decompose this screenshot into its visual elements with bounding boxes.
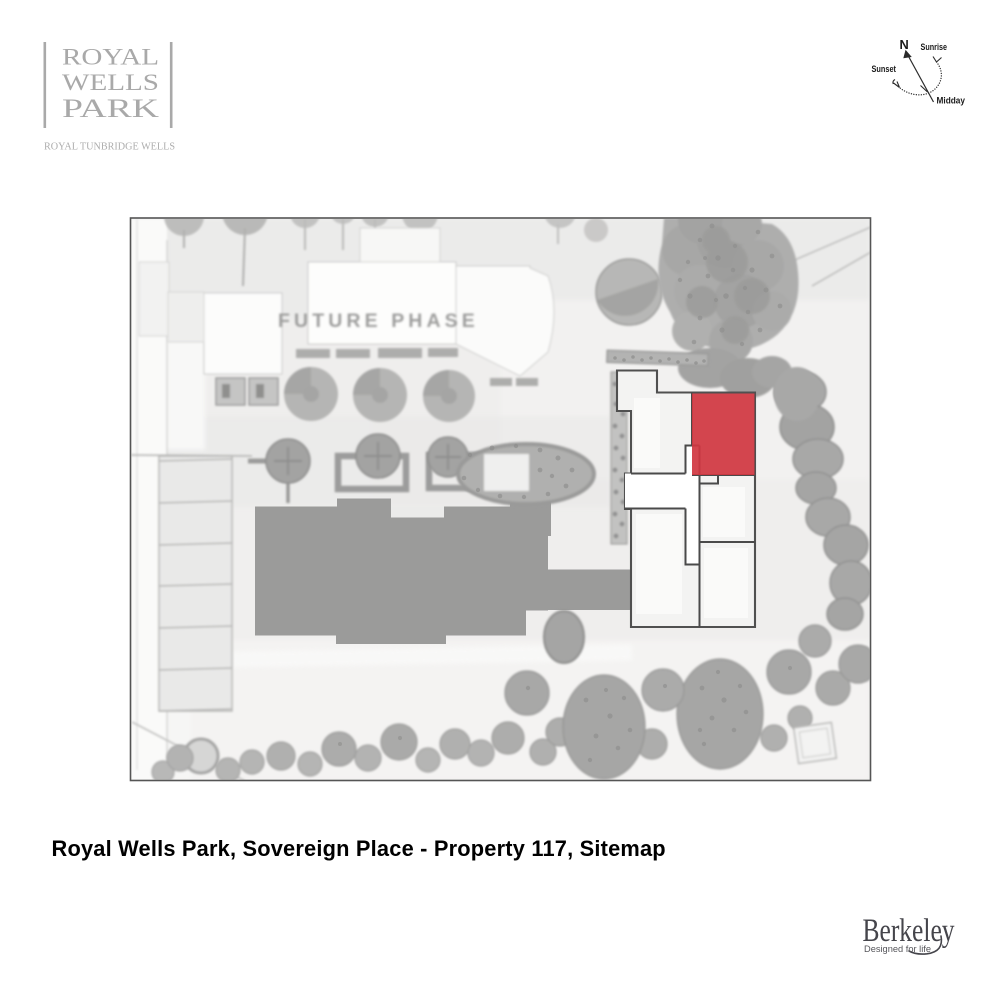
svg-text:Sunrise: Sunrise: [921, 42, 948, 52]
svg-text:WELLS: WELLS: [62, 70, 159, 95]
svg-text:ROYAL TUNBRIDGE WELLS: ROYAL TUNBRIDGE WELLS: [44, 142, 175, 153]
svg-text:N: N: [900, 37, 909, 52]
svg-text:Royal Wells Park, Sovereign Pl: Royal Wells Park, Sovereign Place - Prop…: [52, 836, 666, 861]
svg-text:PARK: PARK: [62, 94, 159, 123]
svg-text:Designed for life: Designed for life: [864, 944, 931, 955]
svg-text:ROYAL: ROYAL: [62, 45, 159, 70]
svg-text:Midday: Midday: [937, 96, 966, 106]
svg-text:FUTURE PHASE: FUTURE PHASE: [278, 310, 479, 332]
svg-text:Sunset: Sunset: [872, 64, 897, 74]
